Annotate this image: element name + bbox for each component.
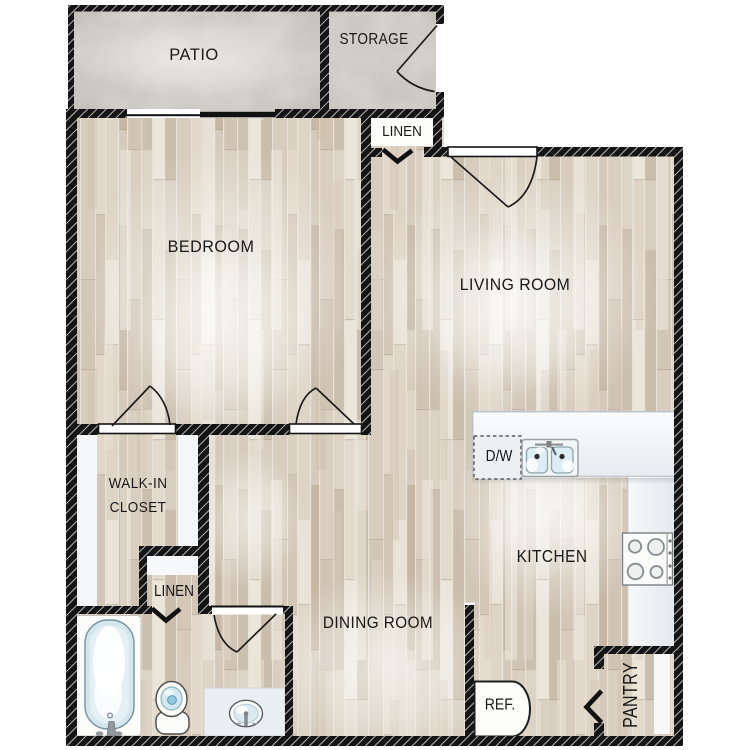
svg-text:BEDROOM: BEDROOM <box>168 237 255 256</box>
svg-text:DINING ROOM: DINING ROOM <box>323 613 433 632</box>
svg-text:WALK-IN: WALK-IN <box>109 475 168 492</box>
svg-text:STORAGE: STORAGE <box>339 31 408 48</box>
svg-text:REF.: REF. <box>485 696 515 714</box>
svg-text:LINEN: LINEN <box>382 123 422 140</box>
svg-text:D/W: D/W <box>486 447 514 465</box>
svg-text:PATIO: PATIO <box>169 45 218 64</box>
svg-text:KITCHEN: KITCHEN <box>517 546 588 566</box>
svg-text:CLOSET: CLOSET <box>110 499 167 516</box>
svg-text:LINEN: LINEN <box>154 583 194 600</box>
svg-text:PANTRY: PANTRY <box>619 662 641 728</box>
svg-text:LIVING ROOM: LIVING ROOM <box>460 276 570 295</box>
